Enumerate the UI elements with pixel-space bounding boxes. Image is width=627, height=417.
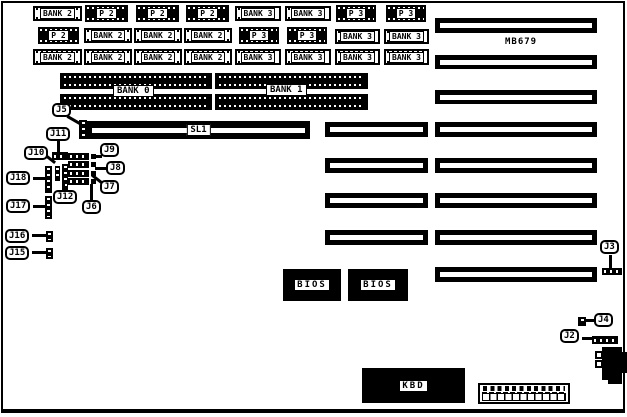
memory-chip-label: BANK 2 — [141, 52, 176, 63]
jumper-callout-j9: J9 — [100, 143, 119, 157]
jumper-pins-j16 — [46, 231, 53, 242]
jumper-callout-j12: J12 — [53, 190, 77, 204]
keyboard-din-pin — [595, 360, 603, 368]
power-connector-pins — [483, 386, 565, 391]
keyboard-din-connector-step — [608, 378, 622, 384]
pal-chip: P 2 — [85, 5, 128, 22]
bios-chip-1-label: BIOS — [294, 279, 330, 291]
pal-chip-label: P 2 — [197, 8, 217, 19]
jumper-pins-j3 — [602, 268, 622, 275]
pal-chip: P 3 — [336, 5, 376, 22]
isa-slot-extension — [325, 122, 428, 137]
board-model-label: MB679 — [505, 37, 537, 47]
memory-chip-label: BANK 3 — [241, 52, 276, 63]
bios-chip-1: BIOS — [283, 269, 341, 301]
memory-chip: BANK 3 — [335, 29, 380, 44]
jumper-pins-j2 — [592, 336, 618, 344]
memory-chip: BANK 2 — [134, 49, 182, 65]
pal-chip-label: P 3 — [249, 30, 269, 41]
jumper-callout-j10: J10 — [24, 146, 48, 160]
memory-chip: BANK 3 — [384, 29, 429, 44]
jumper-pins-j8 — [68, 161, 89, 168]
pal-chip: P 2 — [38, 27, 79, 44]
memory-chip-label: BANK 2 — [91, 52, 126, 63]
pal-chip-label: P 2 — [96, 8, 116, 19]
power-connector-sockets — [482, 393, 566, 401]
keyboard-din-connector — [602, 347, 622, 380]
jumper-pins-j6 — [68, 178, 89, 185]
bios-chip-2: BIOS — [348, 269, 408, 301]
memory-chip-label: BANK 2 — [91, 30, 126, 41]
isa-slot-extension — [325, 193, 428, 208]
pal-chip-label: P 3 — [396, 8, 416, 19]
memory-chip-label: BANK 3 — [340, 52, 375, 63]
pal-chip: P 3 — [386, 5, 426, 22]
jumper-callout-j15: J15 — [5, 246, 29, 260]
callout-tail-j3 — [609, 255, 612, 269]
memory-chip: BANK 2 — [134, 28, 182, 43]
jumper-callout-j3: J3 — [600, 240, 619, 254]
memory-chip-label: BANK 2 — [40, 8, 75, 19]
sl1-label: SL1 — [186, 124, 210, 136]
jumper-callout-j8: J8 — [106, 161, 125, 175]
callout-tail-j11 — [57, 140, 60, 153]
jumper-pins-j7 — [68, 170, 89, 177]
memory-chip-label: BANK 3 — [241, 8, 276, 19]
isa-slot — [435, 230, 597, 245]
pal-chip-label: P 2 — [48, 30, 68, 41]
memory-chip: BANK 3 — [285, 6, 331, 21]
bank1-label: BANK 1 — [266, 84, 307, 96]
jumper-callout-j2: J2 — [560, 329, 579, 343]
jumper-callout-j5: J5 — [52, 103, 71, 117]
memory-chip-label: BANK 3 — [389, 31, 424, 42]
motherboard-layout-diagram: MB679 BANK 2 P 2 P 2 P 2 BANK 3 BANK 3 P… — [0, 0, 627, 417]
bank0-label: BANK 0 — [113, 85, 154, 97]
memory-chip: BANK 2 — [33, 49, 82, 65]
jumper-callout-j11: J11 — [46, 127, 70, 141]
memory-chip: BANK 2 — [84, 49, 132, 65]
jumper-pins-j11 — [52, 152, 68, 160]
memory-chip: BANK 3 — [335, 49, 380, 65]
jumper-callout-j18: J18 — [6, 171, 30, 185]
isa-slot — [435, 90, 597, 104]
pal-chip: P 2 — [186, 5, 229, 22]
jumper-pins-j9 — [68, 153, 89, 160]
sl1-slot: SL1 — [87, 121, 310, 139]
callout-tail-j16 — [32, 234, 47, 237]
memory-chip: BANK 2 — [84, 28, 132, 43]
isa-slot — [435, 55, 597, 69]
callout-tail-j15 — [32, 251, 47, 254]
callout-tail-j6 — [90, 184, 93, 201]
jumper-callout-j6: J6 — [82, 200, 101, 214]
pal-chip-label: P 2 — [147, 8, 167, 19]
jumper-callout-j17: J17 — [6, 199, 30, 213]
memory-chip: BANK 2 — [184, 28, 232, 43]
callout-tail-j17 — [33, 205, 46, 208]
memory-chip-label: BANK 3 — [291, 52, 326, 63]
memory-chip: BANK 3 — [384, 49, 429, 65]
isa-slot-extension — [325, 230, 428, 245]
callout-tail-j18 — [33, 177, 46, 180]
pal-chip-label: P 3 — [346, 8, 366, 19]
isa-slot — [435, 122, 597, 137]
isa-slot — [435, 267, 597, 282]
isa-slot — [435, 18, 597, 33]
memory-chip-label: BANK 3 — [389, 52, 424, 63]
jumper-pins-j17 — [45, 196, 52, 219]
memory-chip-label: BANK 2 — [141, 30, 176, 41]
jumper-pins-j10 — [55, 166, 60, 181]
pal-chip-label: P 3 — [297, 30, 317, 41]
jumper-pins-j15 — [46, 248, 53, 259]
jumper-callout-j16: J16 — [5, 229, 29, 243]
jumper-pins-j18 — [45, 166, 52, 193]
memory-chip: BANK 2 — [184, 49, 232, 65]
simm-socket-bank1-row2 — [215, 94, 368, 110]
pal-chip: P 3 — [287, 27, 327, 44]
isa-slot-extension — [325, 158, 428, 173]
memory-chip-label: BANK 2 — [40, 52, 75, 63]
isa-slot — [435, 193, 597, 208]
memory-chip: BANK 2 — [33, 6, 82, 21]
memory-chip-label: BANK 3 — [291, 8, 326, 19]
memory-chip-label: BANK 2 — [191, 30, 226, 41]
callout-tail-j2 — [582, 337, 593, 340]
jumper-callout-j4: J4 — [594, 313, 613, 327]
power-connector — [478, 383, 570, 404]
jumper-callout-j7: J7 — [100, 180, 119, 194]
memory-chip-label: BANK 2 — [191, 52, 226, 63]
keyboard-din-connector-tab — [621, 352, 627, 373]
bios-chip-2-label: BIOS — [360, 279, 396, 291]
pal-chip: P 3 — [239, 27, 279, 44]
kbd-chip-label: KBD — [399, 380, 427, 392]
keyboard-din-pin — [595, 351, 603, 359]
isa-slot — [435, 158, 597, 173]
memory-chip: BANK 3 — [235, 6, 281, 21]
pal-chip: P 2 — [136, 5, 179, 22]
memory-chip: BANK 3 — [285, 49, 331, 65]
memory-chip: BANK 3 — [235, 49, 281, 65]
memory-chip-label: BANK 3 — [340, 31, 375, 42]
keyboard-controller-chip: KBD — [362, 368, 465, 403]
